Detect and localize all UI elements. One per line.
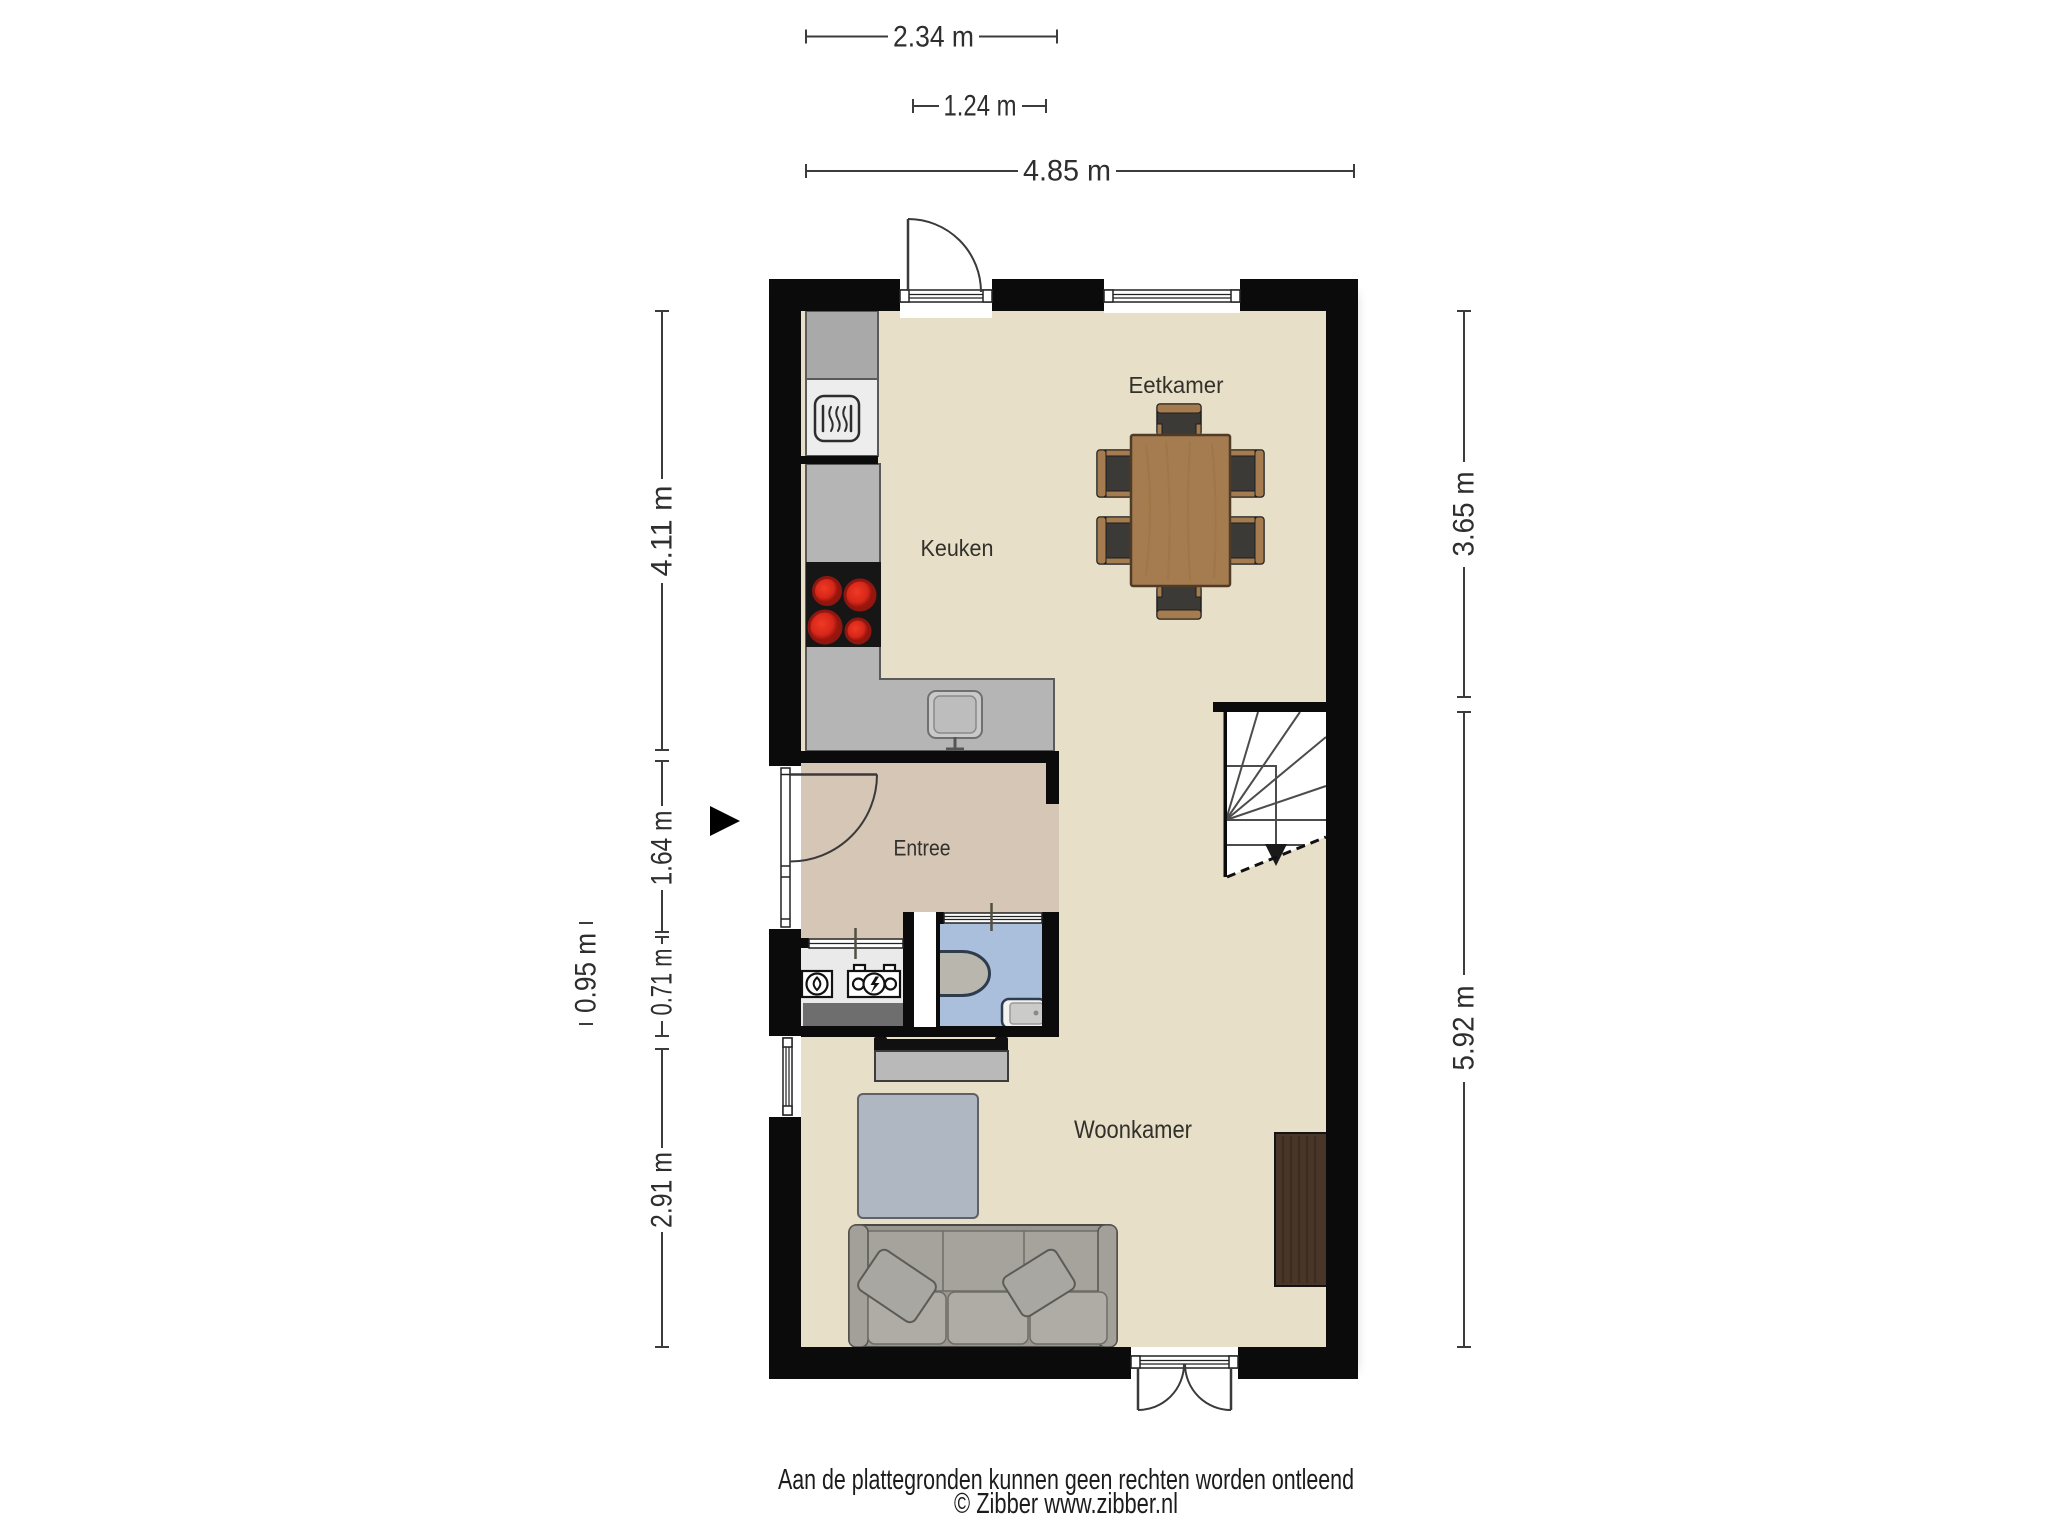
- svg-text:1.24 m: 1.24 m: [944, 90, 1017, 123]
- svg-text:Woonkamer: Woonkamer: [1074, 1116, 1192, 1144]
- svg-text:1.64 m: 1.64 m: [646, 811, 679, 886]
- svg-text:3.65 m: 3.65 m: [1448, 472, 1481, 557]
- svg-text:4.85 m: 4.85 m: [1023, 155, 1111, 188]
- svg-text:5.92 m: 5.92 m: [1448, 986, 1481, 1071]
- svg-text:4.11 m: 4.11 m: [646, 486, 679, 577]
- svg-text:© Zibber www.zibber.nl: © Zibber www.zibber.nl: [954, 1488, 1178, 1520]
- svg-text:0.95 m: 0.95 m: [570, 933, 603, 1013]
- svg-text:2.34 m: 2.34 m: [893, 21, 974, 54]
- svg-text:Entree: Entree: [894, 836, 951, 861]
- svg-text:Eetkamer: Eetkamer: [1129, 372, 1224, 398]
- svg-text:0.71 m: 0.71 m: [646, 949, 679, 1016]
- svg-text:Keuken: Keuken: [921, 535, 994, 561]
- svg-text:2.91 m: 2.91 m: [646, 1152, 679, 1228]
